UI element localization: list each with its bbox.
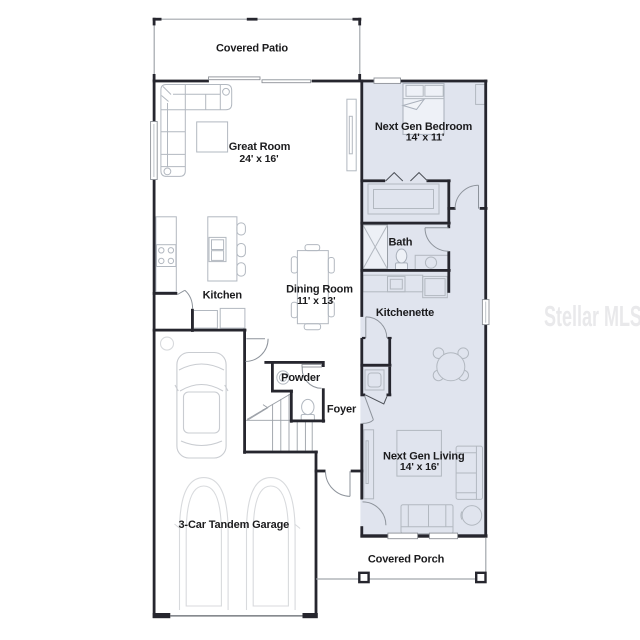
svg-text:Dining Room: Dining Room [286,284,353,296]
svg-text:Bath: Bath [388,236,412,248]
svg-text:Kitchen: Kitchen [203,290,243,302]
svg-text:24' x 16': 24' x 16' [239,153,278,165]
svg-text:Covered Porch: Covered Porch [368,554,445,566]
svg-text:Powder: Powder [281,372,321,384]
svg-text:11' x 13': 11' x 13' [297,295,336,307]
svg-text:14' x 16': 14' x 16' [400,461,439,473]
svg-text:3-Car Tandem Garage: 3-Car Tandem Garage [178,519,289,531]
svg-text:Covered Patio: Covered Patio [216,43,288,55]
svg-text:14' x 11': 14' x 11' [406,131,445,143]
svg-text:Foyer: Foyer [327,404,357,416]
svg-text:Kitchenette: Kitchenette [376,307,434,319]
svg-text:Great Room: Great Room [229,141,291,153]
